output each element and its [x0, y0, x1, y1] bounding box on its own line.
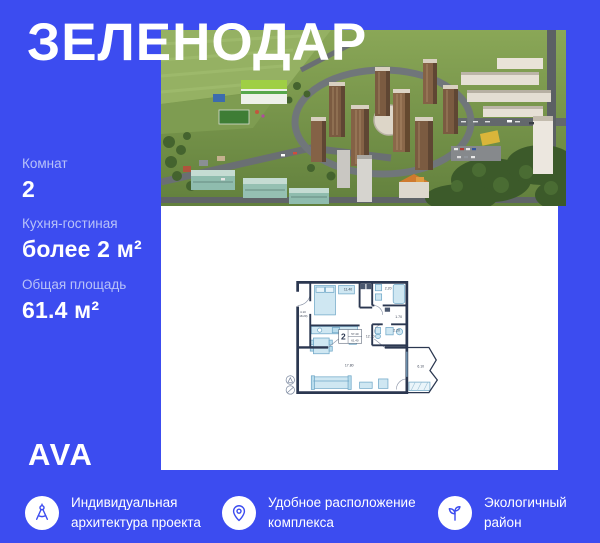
feature-icon-circle — [438, 496, 472, 530]
section-marker-icons — [286, 376, 294, 394]
feature-text: Удобное расположение комплекса — [268, 493, 426, 534]
plan-stamp: 2 57.40 61.40 — [338, 330, 361, 344]
floor-plan: 2 57.40 61.40 11.40 2.20 1.70 2.20 12.70… — [284, 278, 452, 398]
room-area-label: 17.80 — [344, 363, 353, 367]
room-area-label: (18.20) — [298, 314, 307, 318]
feature-location: Удобное расположение комплекса — [222, 493, 426, 534]
spec-kitchen-living-label: Кухня-гостиная — [22, 216, 172, 231]
room-area-label: 1.70 — [395, 315, 402, 319]
feature-eco: Экологичный район — [438, 493, 596, 534]
feature-icon-circle — [25, 496, 59, 530]
spec-kitchen-living-value: более 2 м² — [22, 236, 172, 263]
feature-icon-circle — [222, 496, 256, 530]
ava-logo: AVA — [28, 437, 93, 473]
room-area-label: 12.70 — [365, 334, 374, 338]
room-area-label: 2.20 — [393, 329, 400, 333]
drafting-compass-icon — [32, 503, 52, 523]
plan-stamp-living-area: 57.40 — [351, 332, 359, 336]
spec-kitchen-living: Кухня-гостиная более 2 м² — [22, 216, 172, 263]
floor-plan-panel: 2 57.40 61.40 11.40 2.20 1.70 2.20 12.70… — [161, 206, 558, 470]
spec-rooms: Комнат 2 — [22, 156, 172, 203]
room-area-label: 6.10 — [417, 364, 424, 368]
plan-stamp-rooms: 2 — [340, 332, 345, 342]
spec-rooms-label: Комнат — [22, 156, 172, 171]
spec-total-area-value: 61.4 м² — [22, 297, 172, 324]
spec-total-area: Общая площадь 61.4 м² — [22, 277, 172, 324]
room-area-label: 2.20 — [384, 287, 391, 291]
feature-architecture: Индивидуальная архитектура проекта — [25, 493, 249, 534]
property-card: ЗЕЛЕНОДАР Комнат 2 Кухня-гостиная более … — [0, 0, 600, 543]
location-pin-icon — [229, 503, 249, 523]
feature-text: Экологичный район — [484, 493, 596, 534]
page-title: ЗЕЛЕНОДАР — [27, 16, 367, 69]
plan-stamp-total-area: 61.40 — [351, 339, 359, 343]
spec-rooms-value: 2 — [22, 176, 172, 203]
spec-total-area-label: Общая площадь — [22, 277, 172, 292]
room-area-label: 11.40 — [343, 288, 351, 292]
leaf-icon — [445, 503, 465, 523]
